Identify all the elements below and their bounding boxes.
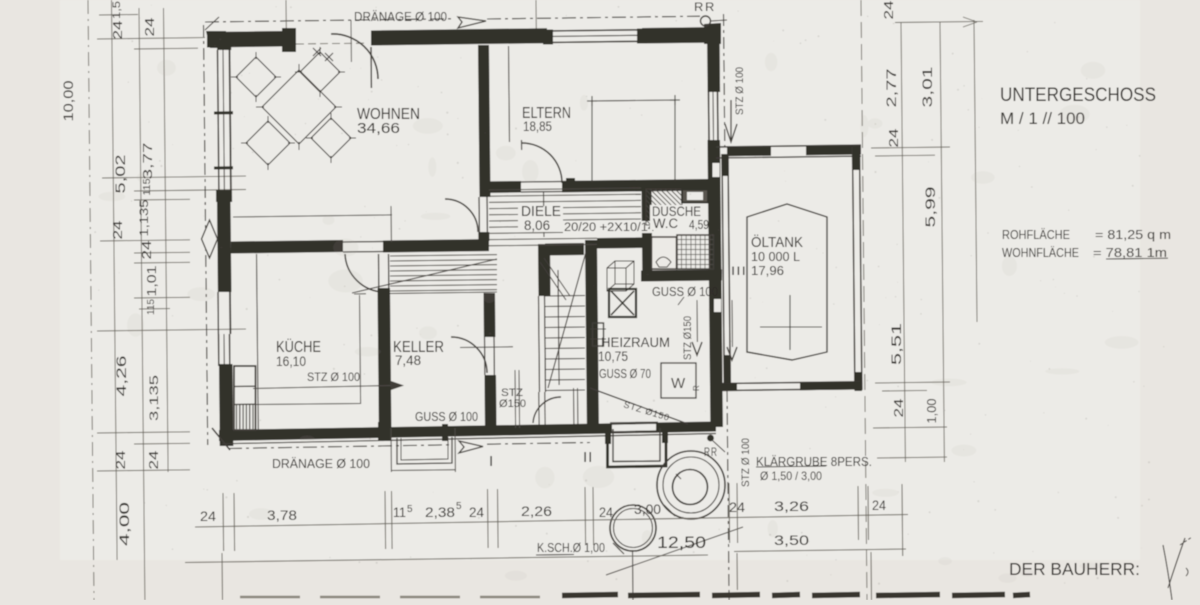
svg-text:24: 24 <box>139 241 154 260</box>
svg-text:DRÄNAGE Ø 100: DRÄNAGE Ø 100 <box>272 456 370 471</box>
svg-text:24: 24 <box>469 504 484 520</box>
svg-text:3,01: 3,01 <box>920 67 935 108</box>
svg-text:STZ Ø 100: STZ Ø 100 <box>734 67 746 115</box>
svg-text:115: 115 <box>145 299 157 315</box>
svg-text:34,66: 34,66 <box>357 121 400 137</box>
svg-text:1,01: 1,01 <box>144 266 159 297</box>
svg-text:2,38: 2,38 <box>425 504 455 520</box>
svg-text:10,00: 10,00 <box>60 80 76 121</box>
svg-text:R: R <box>692 385 701 391</box>
svg-text:= 78,81 1m: = 78,81 1m <box>1093 246 1167 260</box>
svg-text:5,99: 5,99 <box>923 187 938 228</box>
svg-text:10,75: 10,75 <box>598 349 628 364</box>
svg-text:24: 24 <box>113 451 128 470</box>
svg-text:III: III <box>731 264 747 278</box>
svg-text:17,96: 17,96 <box>751 263 784 278</box>
svg-text:24: 24 <box>142 18 157 37</box>
svg-text:K.SCH.Ø 1,00: K.SCH.Ø 1,00 <box>537 541 605 555</box>
svg-text:1,00: 1,00 <box>924 399 939 424</box>
svg-text:10 000 L: 10 000 L <box>751 249 800 264</box>
svg-text:24: 24 <box>200 508 216 524</box>
svg-text:Ø150: Ø150 <box>499 398 526 410</box>
svg-text:12,50: 12,50 <box>657 533 706 552</box>
svg-text:5,51: 5,51 <box>889 323 904 365</box>
svg-text:16,10: 16,10 <box>276 353 306 369</box>
svg-text:8,06: 8,06 <box>524 217 550 233</box>
svg-text:11: 11 <box>393 504 406 520</box>
svg-text:7,48: 7,48 <box>395 352 421 368</box>
svg-text:RR: RR <box>694 2 716 14</box>
svg-text:= 81,25 q m: = 81,25 q m <box>1095 228 1171 242</box>
svg-text:STZ Ø 100: STZ Ø 100 <box>307 370 360 384</box>
svg-text:I: I <box>489 453 493 470</box>
svg-text:3,50: 3,50 <box>774 532 809 548</box>
svg-text:II: II <box>583 449 593 466</box>
svg-text:2,77: 2,77 <box>884 69 899 108</box>
svg-text:HEIZRAUM: HEIZRAUM <box>601 335 670 350</box>
svg-text:3,00: 3,00 <box>634 501 661 517</box>
svg-text:ROHFLÄCHE: ROHFLÄCHE <box>1002 228 1070 242</box>
svg-text:3,135: 3,135 <box>149 375 161 421</box>
svg-text:3,26: 3,26 <box>774 498 809 514</box>
svg-text:24: 24 <box>146 451 161 470</box>
svg-text:18,85: 18,85 <box>523 118 552 134</box>
svg-text:W.C: W.C <box>653 216 678 231</box>
svg-text:STZ Ø150: STZ Ø150 <box>682 316 694 360</box>
svg-text:STZ Ø 100: STZ Ø 100 <box>740 438 752 487</box>
svg-text:1,5: 1,5 <box>111 1 123 19</box>
svg-text:UNTERGESCHOSS: UNTERGESCHOSS <box>1000 85 1156 106</box>
svg-text:W: W <box>671 375 686 392</box>
svg-text:2,26: 2,26 <box>521 503 552 519</box>
svg-text:24: 24 <box>599 504 613 520</box>
svg-text:24: 24 <box>881 1 896 20</box>
svg-text:24: 24 <box>891 399 906 418</box>
svg-text:24: 24 <box>110 221 125 240</box>
svg-text:20/20 +2X10/14: 20/20 +2X10/14 <box>564 222 656 234</box>
svg-text:1,135: 1,135 <box>139 200 151 237</box>
svg-text:4,00: 4,00 <box>116 502 132 546</box>
svg-text:24: 24 <box>872 497 886 513</box>
svg-text:5: 5 <box>456 501 462 512</box>
svg-text:4,59: 4,59 <box>689 218 709 232</box>
svg-text:DRÄNAGE Ø 100: DRÄNAGE Ø 100 <box>354 9 447 24</box>
svg-text:Ø 1,50 / 3,00: Ø 1,50 / 3,00 <box>760 469 822 483</box>
svg-text:GUSS Ø 100: GUSS Ø 100 <box>652 285 718 299</box>
svg-text:4,26: 4,26 <box>113 355 129 396</box>
svg-text:GUSS Ø 100: GUSS Ø 100 <box>415 410 478 424</box>
svg-text:GUSS Ø 70: GUSS Ø 70 <box>599 367 651 381</box>
svg-text:5: 5 <box>407 504 413 515</box>
svg-text:5,02: 5,02 <box>112 154 128 193</box>
svg-text:24: 24 <box>886 129 901 148</box>
svg-text:24: 24 <box>729 499 745 515</box>
